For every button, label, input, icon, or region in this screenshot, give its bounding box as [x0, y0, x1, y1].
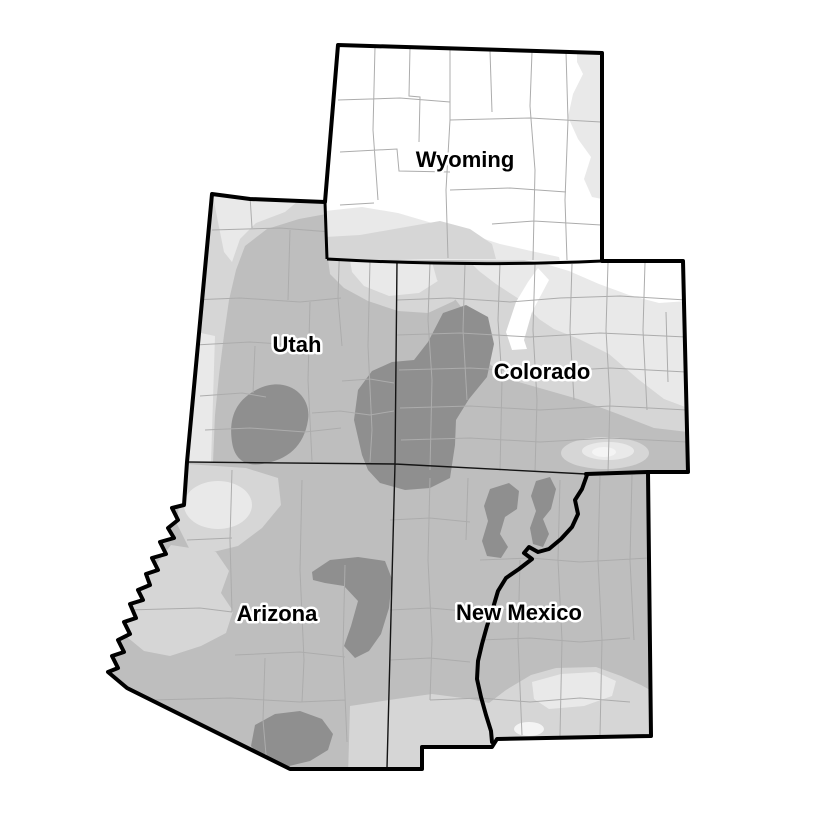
map-screenshot: Wyoming Utah Colorado Arizona New Mexico [0, 0, 816, 816]
shade-blob-arizona-nw-lighter [184, 481, 252, 529]
state-label-colorado: Colorado [494, 359, 591, 384]
shade-blob-colorado-south-bright [592, 447, 616, 457]
state-label-new-mexico: New Mexico [456, 600, 582, 625]
state-label-wyoming: Wyoming [416, 147, 515, 172]
map-canvas: Wyoming Utah Colorado Arizona New Mexico [0, 0, 816, 816]
region-outline-colorado-south-east [586, 472, 648, 474]
state-label-arizona: Arizona [237, 601, 318, 626]
shade-blob-south-band-bright [514, 722, 544, 736]
state-label-utah: Utah [273, 332, 322, 357]
